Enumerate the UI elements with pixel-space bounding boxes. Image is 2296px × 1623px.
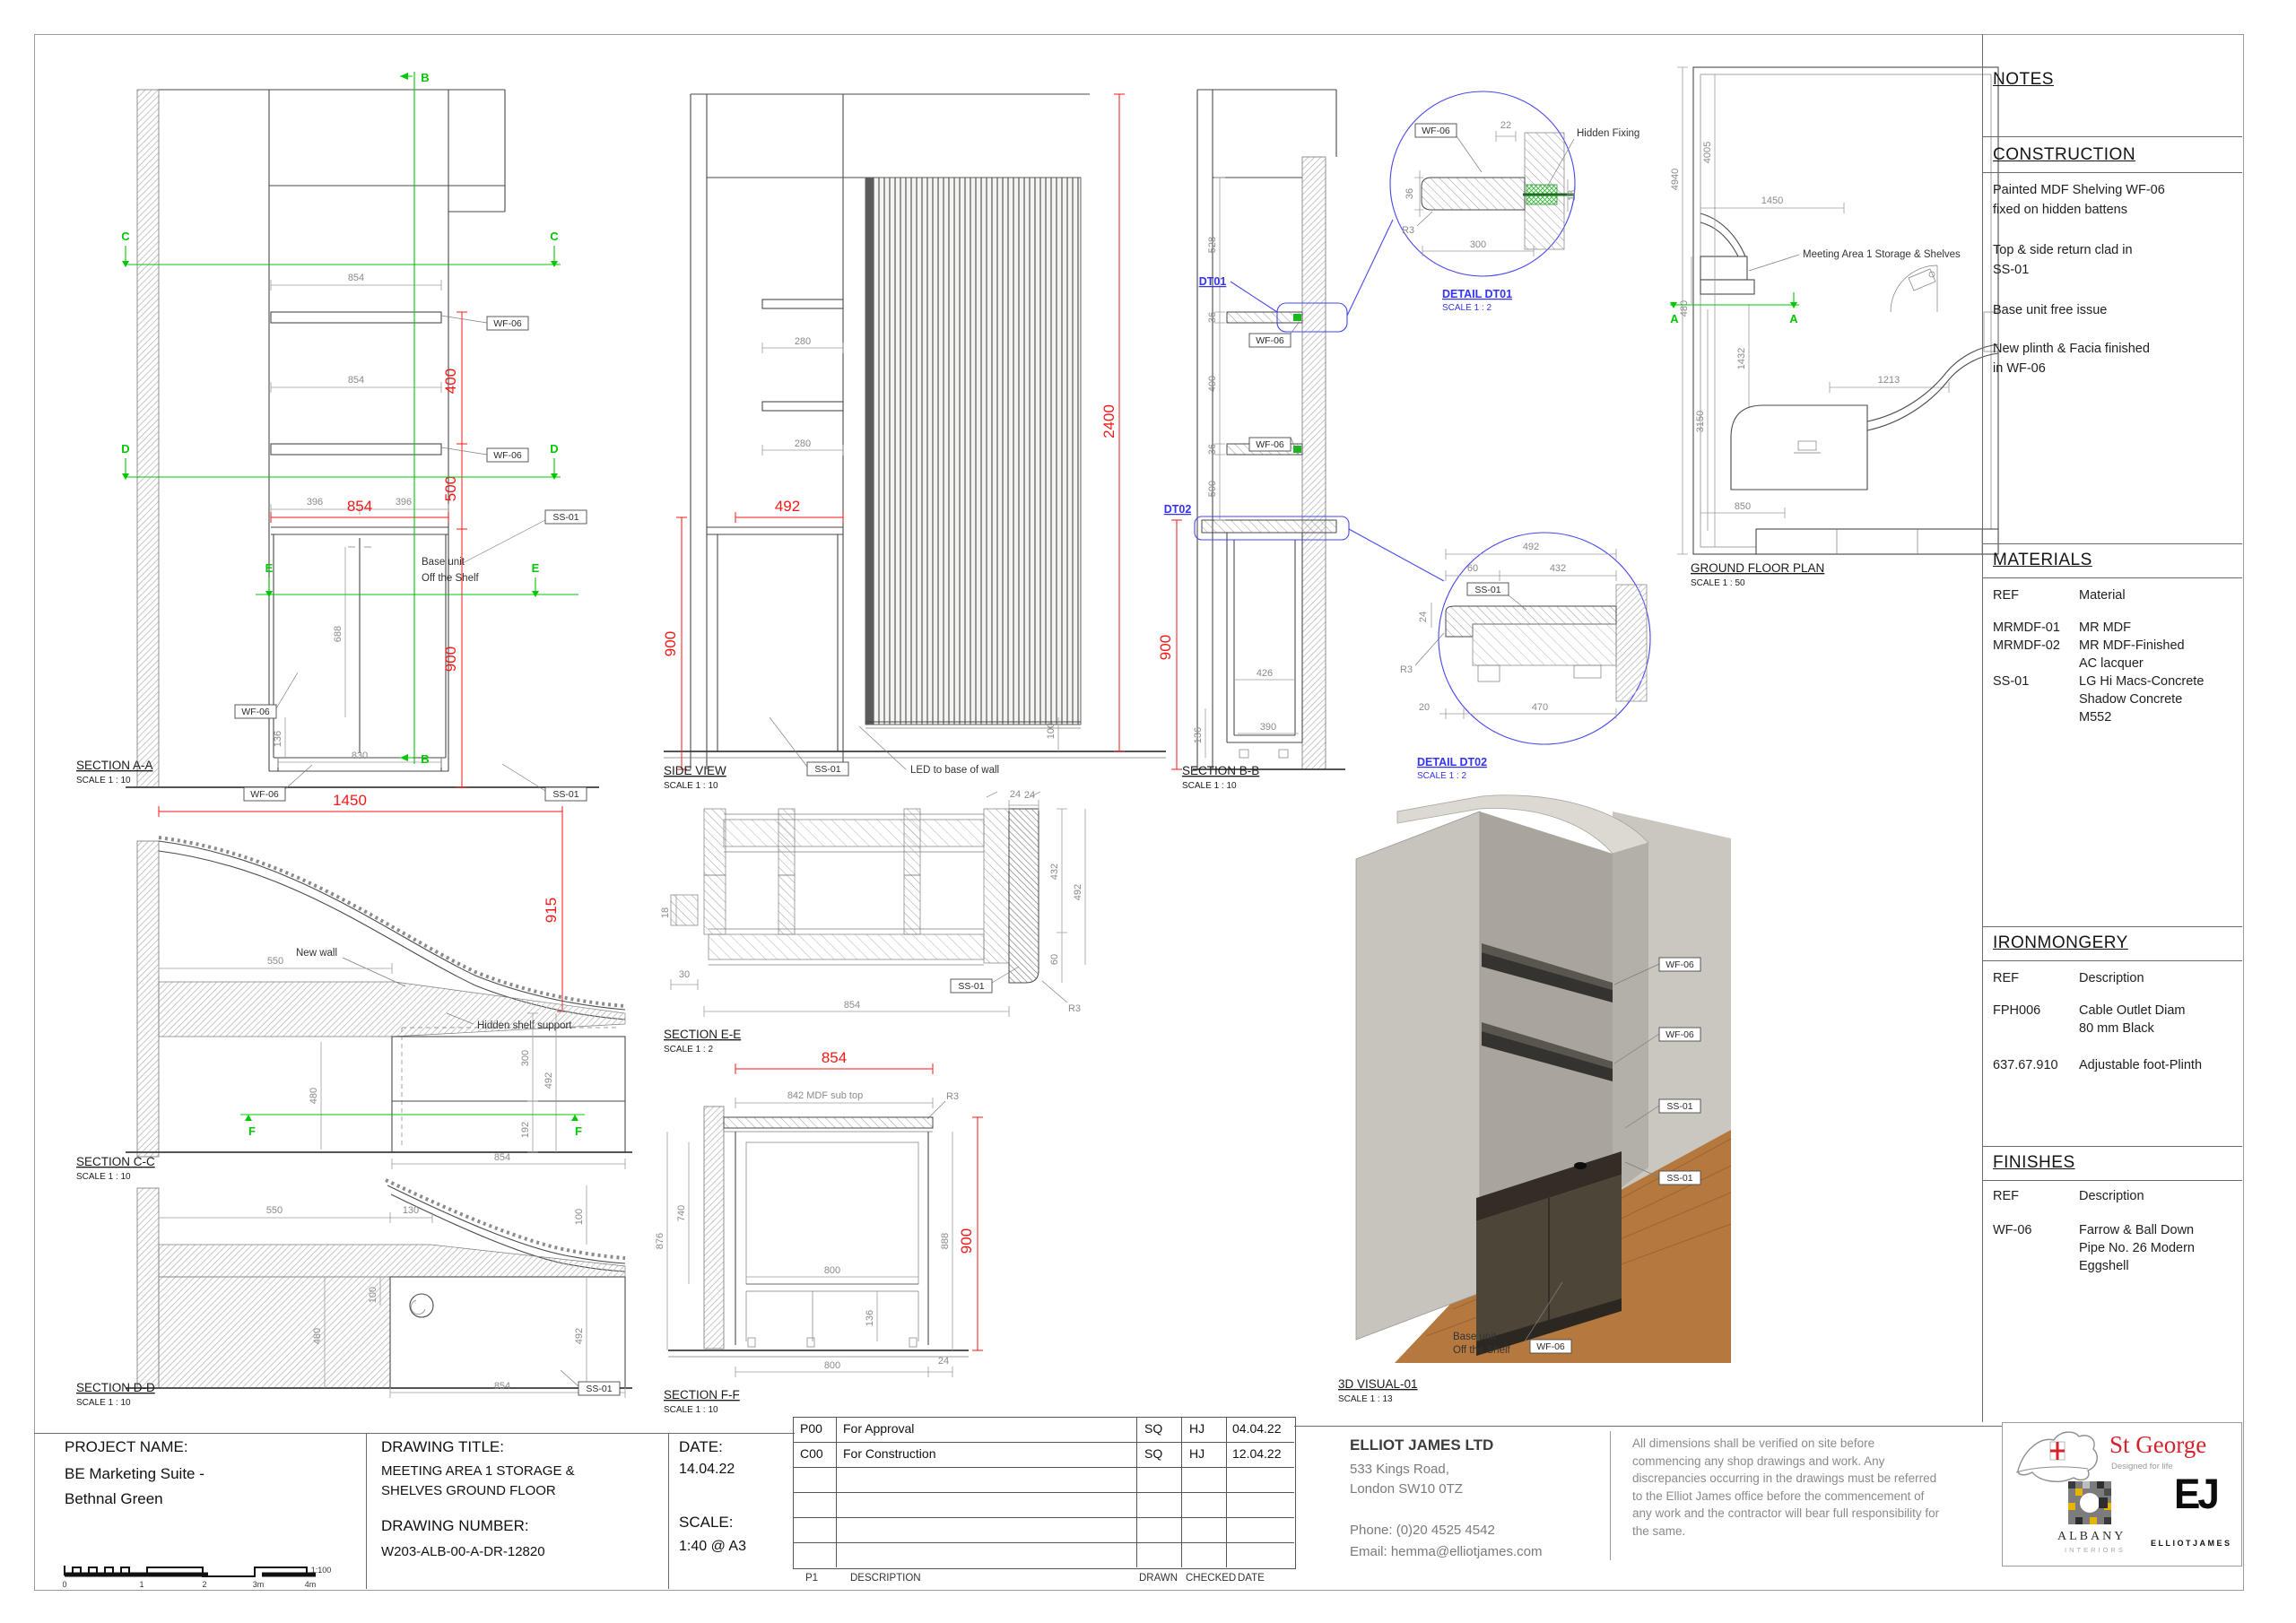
- dim-492: 492: [1073, 884, 1083, 900]
- section-marker-d: D: [550, 442, 558, 456]
- drawing-title: MEETING AREA 1 STORAGE &: [381, 1463, 575, 1479]
- ironmongery-heading: IRONMONGERY: [1993, 933, 2128, 953]
- view-detail-dt02: 492 60 432 SS-01 24 R3 20 470 DETAIL DT0…: [1400, 533, 1650, 781]
- view-scale: SCALE 1 : 10: [1182, 781, 1237, 791]
- revision-footer-desc: DESCRIPTION: [850, 1573, 921, 1584]
- detail-scale: SCALE 1 : 2: [1442, 303, 1492, 313]
- albany-logo-text: ALBANY: [2057, 1530, 2126, 1544]
- view-detail-dt01: 22 Hidden Fixing 36 R3 18 300 WF-06 DETA…: [1390, 91, 1639, 313]
- finish-tag-wf06: WF-06: [250, 789, 279, 800]
- view-title: SECTION A-A: [76, 759, 153, 772]
- dim-900: 900: [958, 1228, 975, 1254]
- view-scale: SCALE 1 : 10: [664, 1405, 718, 1415]
- dim-1450: 1450: [1761, 195, 1783, 206]
- dim-480: 480: [312, 1328, 323, 1344]
- dim-1432: 1432: [1736, 348, 1747, 369]
- view-scale: SCALE 1 : 10: [76, 1398, 131, 1408]
- scale-bar-tick: 3m: [253, 1580, 265, 1589]
- section-marker-c: C: [121, 230, 130, 243]
- revision-date: 12.04.22: [1232, 1446, 1282, 1461]
- section-marker-e: E: [265, 561, 274, 575]
- st-george-logo-text: St George: [2109, 1431, 2206, 1459]
- view-scale: SCALE 1 : 10: [76, 1172, 131, 1182]
- view-scale: SCALE 1 : 10: [664, 781, 718, 791]
- dim-900: 900: [1157, 635, 1174, 660]
- drawing-sheet: 854 854 396 396 688 136 830 400 500 900 …: [0, 0, 2296, 1623]
- dim-528: 528: [1207, 237, 1218, 253]
- dim-18: 18: [1567, 190, 1578, 201]
- revision-code: P00: [800, 1421, 822, 1436]
- construction-note: fixed on hidden battens: [1993, 203, 2127, 217]
- material-desc: M552: [2079, 710, 2111, 725]
- new-wall-note: New wall: [296, 948, 337, 959]
- view-scale: SCALE 1 : 50: [1691, 578, 1745, 588]
- dim-2400: 2400: [1100, 404, 1118, 438]
- dim-500: 500: [1207, 481, 1218, 497]
- dim-426: 426: [1257, 668, 1273, 679]
- ironmongery-desc: 80 mm Black: [2079, 1021, 2154, 1036]
- view-section-ff: 854 842 MDF sub top R3 876 740 800 136: [655, 1049, 983, 1415]
- detail-title: DETAIL DT01: [1442, 288, 1512, 300]
- company-address: London SW10 0TZ: [1350, 1481, 1463, 1497]
- section-marker-a: A: [1670, 312, 1679, 325]
- dim-36: 36: [1207, 444, 1218, 455]
- base-unit-note: Off the Shelf: [1453, 1345, 1511, 1356]
- date-label: DATE:: [679, 1438, 723, 1456]
- dim-36: 36: [1207, 312, 1218, 323]
- dim-60: 60: [1467, 563, 1478, 574]
- dim-854: 854: [844, 1000, 860, 1011]
- material-ref: MRMDF-02: [1993, 638, 2060, 653]
- section-marker-d: D: [121, 442, 129, 456]
- date-value: 14.04.22: [679, 1462, 735, 1478]
- plan-annotation: Meeting Area 1 Storage & Shelves: [1803, 249, 1961, 260]
- material-ref: SS-01: [1993, 674, 2029, 689]
- drawing-title-label: DRAWING TITLE:: [381, 1438, 504, 1456]
- material-desc: MR MDF: [2079, 621, 2131, 635]
- detail-scale: SCALE 1 : 2: [1417, 771, 1466, 781]
- construction-note: Top & side return clad in: [1993, 243, 2133, 257]
- dim-492: 492: [544, 1072, 554, 1089]
- material-desc: LG Hi Macs-Concrete: [2079, 674, 2204, 689]
- albany-logo-subtext: INTERIORS: [2065, 1546, 2126, 1554]
- section-marker-c: C: [550, 230, 559, 243]
- construction-note: New plinth & Facia finished: [1993, 342, 2150, 356]
- dim-492: 492: [775, 498, 800, 515]
- view-scale: SCALE 1 : 13: [1338, 1394, 1393, 1404]
- dim-400: 400: [442, 369, 459, 394]
- view-title: SECTION E-E: [664, 1028, 741, 1041]
- dim-470: 470: [1532, 702, 1548, 713]
- base-unit-note: Base unit: [422, 557, 465, 568]
- dim-4940: 4940: [1670, 169, 1681, 190]
- finish-desc: Eggshell: [2079, 1259, 2129, 1273]
- material-ref: MRMDF-01: [1993, 621, 2060, 635]
- dim-900: 900: [442, 647, 459, 672]
- construction-note: SS-01: [1993, 263, 2029, 277]
- base-unit-note: Base unit: [1453, 1332, 1497, 1342]
- hidden-fixing-marker: [1293, 314, 1301, 321]
- finish-tag-wf06: WF-06: [1536, 1341, 1565, 1352]
- finish-tag-wf06: WF-06: [1665, 959, 1694, 970]
- construction-note: Painted MDF Shelving WF-06: [1993, 183, 2165, 197]
- revision-checked: HJ: [1189, 1421, 1205, 1436]
- dim-24: 24: [1418, 612, 1429, 622]
- finishes-heading: FINISHES: [1993, 1153, 2075, 1173]
- dim-830: 830: [352, 751, 368, 761]
- revision-code: C00: [800, 1446, 823, 1461]
- ironmongery-ref: 637.67.910: [1993, 1058, 2058, 1072]
- hidden-fixing-note: Hidden Fixing: [1577, 128, 1639, 139]
- finish-tag-wf06: WF-06: [493, 450, 522, 461]
- dim-130: 130: [403, 1205, 419, 1216]
- project-name: Bethnal Green: [65, 1490, 163, 1508]
- dim-22: 22: [1500, 120, 1511, 131]
- dim-480: 480: [309, 1088, 319, 1104]
- st-george-tagline: Designed for life: [2111, 1462, 2173, 1471]
- dim-740: 740: [676, 1205, 687, 1221]
- section-marker-b: B: [421, 71, 429, 84]
- dim-854: 854: [348, 375, 364, 386]
- company-name: ELLIOT JAMES LTD: [1350, 1436, 1493, 1454]
- ironmongery-desc: Cable Outlet Diam: [2079, 1003, 2185, 1018]
- view-section-dd: 550 130 100 480 100 492 854 SS-01 SECTIO…: [76, 1180, 632, 1408]
- view-section-aa: 854 854 396 396 688 136 830 400 500 900 …: [76, 71, 599, 801]
- revision-desc: For Approval: [843, 1421, 914, 1436]
- dim-100: 100: [1046, 723, 1057, 739]
- dim-888: 888: [940, 1233, 951, 1249]
- dim-18: 18: [660, 907, 671, 918]
- dim-550: 550: [266, 1205, 283, 1216]
- dim-854: 854: [822, 1049, 847, 1066]
- company-email: Email: hemma@elliotjames.com: [1350, 1544, 1542, 1559]
- material-tag-ss01: SS-01: [1666, 1173, 1692, 1184]
- render-left-panel: [1356, 811, 1480, 1340]
- view-title: SECTION C-C: [76, 1155, 155, 1168]
- dim-300: 300: [520, 1050, 531, 1066]
- finishes-col-ref: REF: [1993, 1189, 2019, 1203]
- detail-callout-dt02: DT02: [1164, 503, 1192, 516]
- dim-60: 60: [1049, 954, 1060, 965]
- materials-col-desc: Material: [2079, 588, 2126, 603]
- radius-r3: R3: [1068, 1003, 1081, 1014]
- dim-480: 480: [1679, 300, 1690, 317]
- section-marker-f: F: [575, 1124, 582, 1138]
- elliot-james-monogram: EJ: [2174, 1471, 2217, 1519]
- material-tag-ss01: SS-01: [552, 512, 578, 523]
- disclaimer-text: All dimensions shall be verified on site…: [1632, 1435, 1942, 1540]
- dim-136: 136: [865, 1310, 875, 1326]
- finish-tag-wf06: WF-06: [493, 318, 522, 329]
- st-george-knight-icon: [2007, 1424, 2106, 1483]
- dim-854: 854: [348, 273, 364, 283]
- revision-footer-checked: CHECKED: [1186, 1573, 1236, 1584]
- radius-r3: R3: [946, 1091, 959, 1102]
- dim-396: 396: [307, 497, 323, 508]
- revision-desc: For Construction: [843, 1446, 935, 1461]
- scale-bar-tick: 1: [139, 1580, 143, 1589]
- scale-bar-tick: 4m: [305, 1580, 317, 1589]
- drawing-number-label: DRAWING NUMBER:: [381, 1517, 529, 1535]
- project-name-label: PROJECT NAME:: [65, 1438, 188, 1456]
- project-name: BE Marketing Suite -: [65, 1465, 204, 1483]
- dim-550: 550: [267, 956, 283, 967]
- view-3d-visual: WF-06 WF-06 SS-01 SS-01 Base unit Off th…: [1338, 795, 1731, 1404]
- drawing-number: W203-ALB-00-A-DR-12820: [381, 1544, 545, 1559]
- hidden-shelf-note: Hidden shelf support: [477, 1020, 572, 1031]
- scale-bar-tick: 0: [63, 1580, 67, 1589]
- section-marker-b: B: [421, 752, 429, 766]
- material-tag-ss01: SS-01: [814, 764, 840, 775]
- dim-24: 24: [1010, 789, 1021, 800]
- dim-850: 850: [1735, 501, 1751, 512]
- dim-432: 432: [1550, 563, 1566, 574]
- render-side-return: [1613, 843, 1648, 1194]
- dim-396: 396: [396, 497, 412, 508]
- material-tag-ss01: SS-01: [552, 789, 578, 800]
- dim-492: 492: [574, 1328, 585, 1344]
- dim-280: 280: [795, 336, 811, 347]
- dim-192: 192: [520, 1122, 531, 1138]
- view-scale: SCALE 1 : 2: [664, 1045, 713, 1055]
- dim-400: 400: [1207, 376, 1218, 392]
- dim-492: 492: [1523, 542, 1539, 552]
- led-note: LED to base of wall: [910, 765, 999, 776]
- revision-footer-rev: P1: [805, 1573, 818, 1584]
- company-address: 533 Kings Road,: [1350, 1462, 1449, 1477]
- view-side-view: 280 280 492 2400 900 100 24 SS-01 LED to…: [662, 94, 1166, 800]
- finish-tag-wf06: WF-06: [1256, 335, 1284, 346]
- materials-heading: MATERIALS: [1993, 551, 2092, 570]
- material-desc: Shadow Concrete: [2079, 692, 2182, 707]
- dim-688: 688: [333, 626, 344, 642]
- ironmongery-ref: FPH006: [1993, 1003, 2040, 1018]
- detail-callout-dt01: DT01: [1199, 275, 1227, 288]
- dim-30: 30: [679, 969, 690, 980]
- elliot-james-logo-text: ELLIOTJAMES: [2151, 1539, 2232, 1548]
- material-tag-ss01: SS-01: [1666, 1101, 1692, 1112]
- dim-100: 100: [574, 1209, 585, 1225]
- scale-bar: 0 1 2 3m 4m 1:100: [63, 1558, 332, 1591]
- finish-tag-wf06: WF-06: [1422, 126, 1450, 136]
- dim-854: 854: [347, 498, 372, 515]
- dim-280: 280: [795, 438, 811, 449]
- view-scale: SCALE 1 : 10: [76, 776, 131, 785]
- view-title: GROUND FLOOR PLAN: [1691, 561, 1824, 575]
- material-tag-ss01: SS-01: [958, 981, 984, 992]
- dim-876: 876: [655, 1233, 665, 1249]
- ironmongery-desc: Adjustable foot-Plinth: [2079, 1058, 2202, 1072]
- section-marker-f: F: [248, 1124, 256, 1138]
- scale-bar-ratio: 1:100: [311, 1566, 332, 1575]
- view-title: SECTION D-D: [76, 1381, 155, 1394]
- view-title: SIDE VIEW: [664, 764, 726, 777]
- view-title: SECTION B-B: [1182, 764, 1259, 777]
- notes-heading: NOTES: [1993, 70, 2054, 90]
- radius-r3: R3: [1402, 225, 1414, 236]
- dim-900: 900: [662, 631, 679, 656]
- revision-checked: HJ: [1189, 1446, 1205, 1461]
- albany-logo-icon: [2068, 1481, 2111, 1524]
- drawing-canvas: 854 854 396 396 688 136 830 400 500 900 …: [0, 0, 2296, 1623]
- revision-footer-date: DATE: [1238, 1573, 1265, 1584]
- revision-date: 04.04.22: [1232, 1421, 1282, 1436]
- dim-100: 100: [368, 1287, 378, 1303]
- dim-1450: 1450: [333, 792, 367, 809]
- dim-915: 915: [543, 898, 560, 923]
- dim-1213: 1213: [1878, 375, 1900, 386]
- dim-842-subtop: 842 MDF sub top: [787, 1090, 863, 1101]
- revision-table: [793, 1417, 1296, 1569]
- dim-300: 300: [1470, 239, 1486, 250]
- ironmongery-col-desc: Description: [2079, 971, 2144, 985]
- dim-800: 800: [824, 1360, 840, 1371]
- finish-desc: Pipe No. 26 Modern: [2079, 1241, 2195, 1255]
- scale-value: 1:40 @ A3: [679, 1539, 746, 1555]
- view-ground-floor-plan: Meeting Area 1 Storage & Shelves 1450 49…: [1670, 67, 1998, 588]
- dim-136: 136: [273, 731, 283, 747]
- dim-36: 36: [1405, 188, 1415, 199]
- section-marker-e: E: [532, 561, 540, 575]
- material-tag-ss01: SS-01: [1474, 585, 1500, 595]
- view-section-ee: 24 432 492 60 18 30 854 SS-01 R3 SECTION…: [660, 790, 1085, 1055]
- dim-500: 500: [442, 476, 459, 501]
- dim-390: 390: [1260, 722, 1276, 733]
- dim-854: 854: [494, 1381, 510, 1392]
- dim-4005: 4005: [1702, 142, 1713, 163]
- base-unit-note: Off the Shelf: [422, 573, 480, 584]
- section-marker-a: A: [1789, 312, 1798, 325]
- view-section-bb: 528 36 400 36 500 426 390 136 900 DT01 D…: [1157, 90, 1444, 791]
- finish-tag-wf06: WF-06: [1256, 439, 1284, 450]
- construction-note: Base unit free issue: [1993, 303, 2107, 317]
- construction-note: in WF-06: [1993, 361, 2046, 376]
- company-phone: Phone: (0)20 4525 4542: [1350, 1523, 1495, 1538]
- ironmongery-col-ref: REF: [1993, 971, 2019, 985]
- finishes-col-desc: Description: [2079, 1189, 2144, 1203]
- dim-24: 24: [1024, 790, 1035, 801]
- finish-desc: Farrow & Ball Down: [2079, 1223, 2194, 1237]
- material-tag-ss01: SS-01: [586, 1384, 612, 1394]
- detail-title: DETAIL DT02: [1417, 756, 1487, 768]
- render-cable-outlet: [1574, 1162, 1587, 1169]
- dim-432: 432: [1049, 864, 1060, 880]
- dim-136: 136: [1193, 727, 1204, 743]
- finish-tag-wf06: WF-06: [1665, 1029, 1694, 1040]
- material-desc: MR MDF-Finished: [2079, 638, 2185, 653]
- view-title: 3D VISUAL-01: [1338, 1377, 1418, 1391]
- dim-24: 24: [938, 1356, 949, 1367]
- revision-drawn: SQ: [1144, 1446, 1162, 1461]
- drawing-title: SHELVES GROUND FLOOR: [381, 1483, 556, 1498]
- construction-heading: CONSTRUCTION: [1993, 145, 2135, 165]
- finish-tag-wf06: WF-06: [241, 707, 270, 717]
- material-desc: AC lacquer: [2079, 656, 2144, 671]
- scale-label: SCALE:: [679, 1514, 733, 1532]
- dim-854: 854: [494, 1152, 510, 1163]
- finish-ref: WF-06: [1993, 1223, 2032, 1237]
- dim-800: 800: [824, 1265, 840, 1276]
- view-title: SECTION F-F: [664, 1388, 740, 1402]
- revision-drawn: SQ: [1144, 1421, 1162, 1436]
- scale-bar-tick: 2: [202, 1580, 206, 1589]
- radius-r3: R3: [1400, 664, 1413, 675]
- dim-20: 20: [1419, 702, 1430, 713]
- view-section-cc: 1450 915 New wall 550 Hidden shelf suppo…: [76, 792, 632, 1182]
- revision-footer-drawn: DRAWN: [1139, 1573, 1178, 1584]
- materials-col-ref: REF: [1993, 588, 2019, 603]
- dim-3150: 3150: [1695, 411, 1706, 432]
